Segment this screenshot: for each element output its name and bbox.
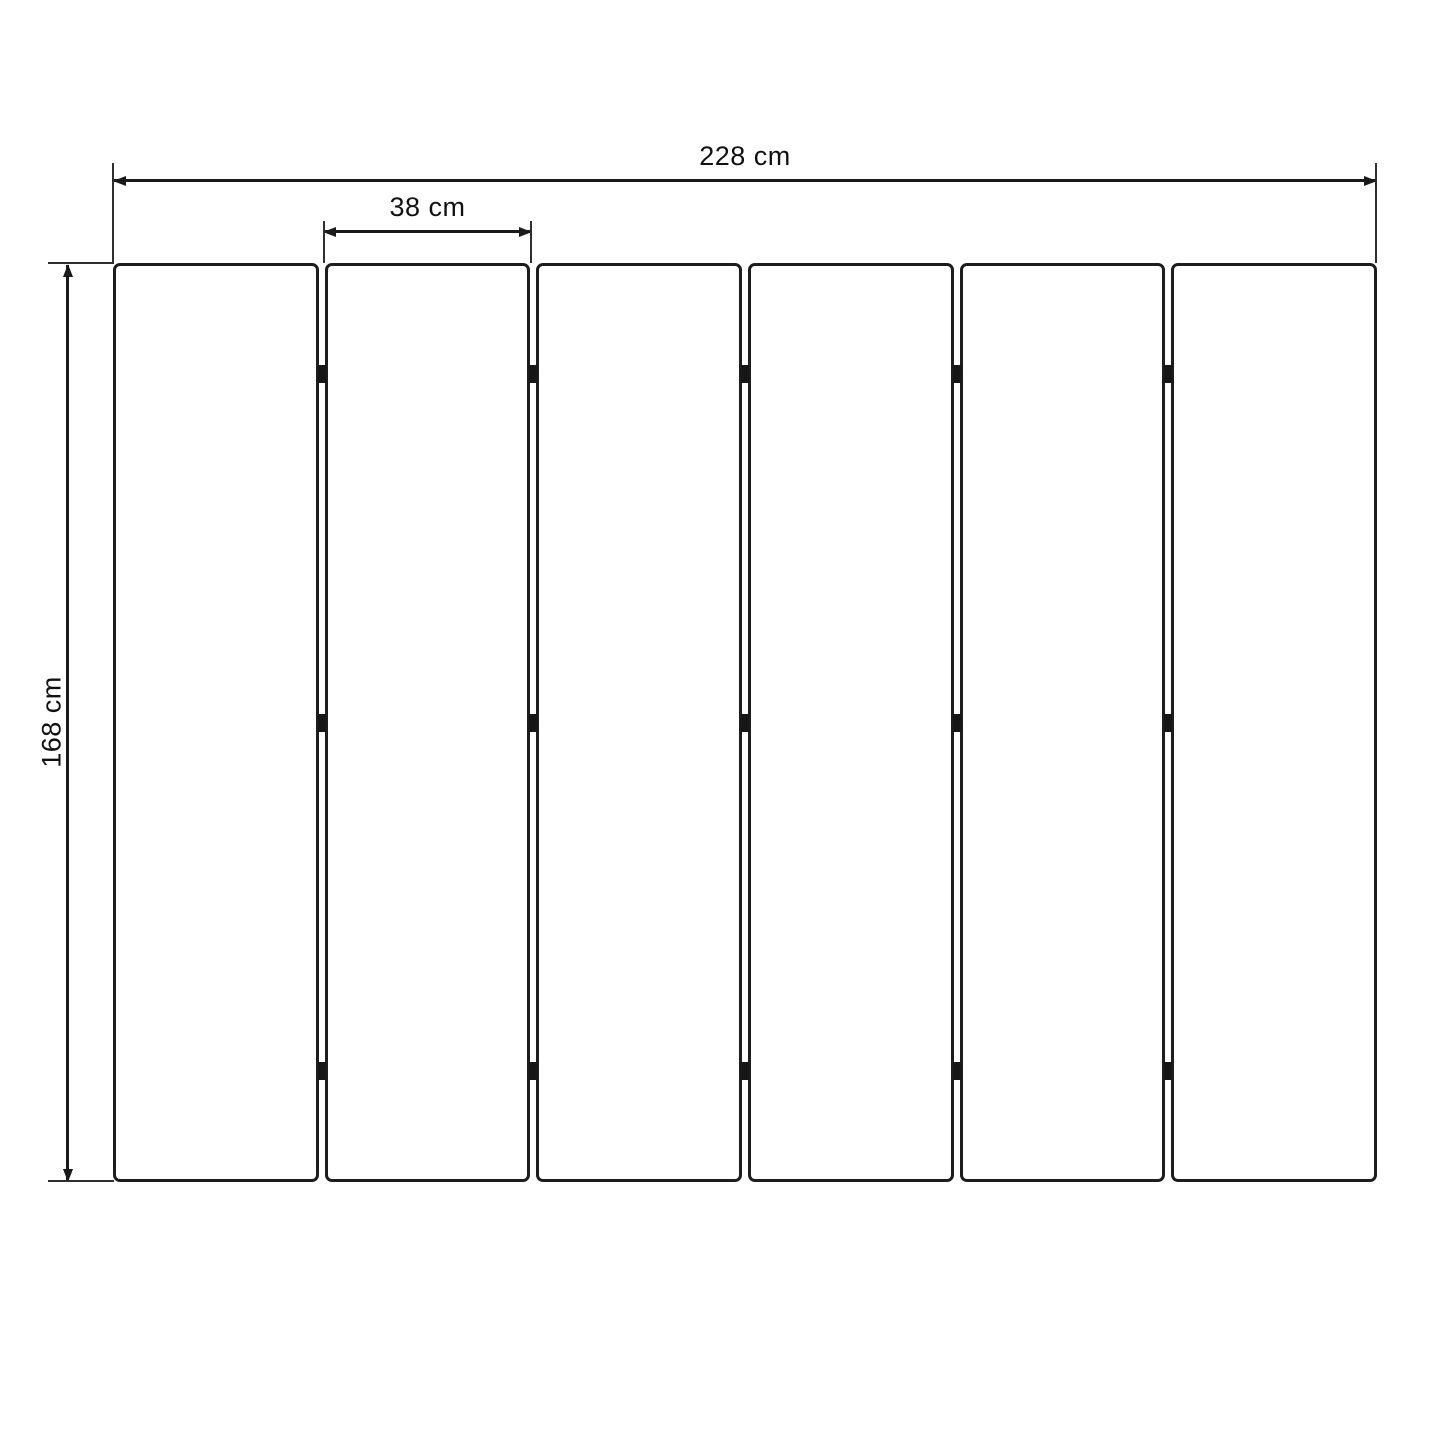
panel-gap (1165, 263, 1171, 1182)
panel-4 (748, 263, 954, 1182)
hinge-connector (953, 714, 961, 732)
extension-line-panel-right (530, 221, 532, 263)
total-width-dimension-line (114, 179, 1376, 182)
hinge-connector (741, 714, 749, 732)
diagram-canvas: 228 cm 38 cm 168 cm (0, 0, 1445, 1445)
hinge-connector (318, 365, 326, 383)
panel-6 (1171, 263, 1377, 1182)
panel-width-dimension-line (324, 230, 531, 233)
hinge-connector (318, 714, 326, 732)
total-width-label: 228 cm (113, 141, 1377, 172)
panel-2 (325, 263, 531, 1182)
hinge-connector (1164, 714, 1172, 732)
panel-gap (742, 263, 748, 1182)
arrowhead-left-icon (323, 227, 336, 237)
extension-line-height-top (48, 262, 114, 264)
panel-5 (960, 263, 1166, 1182)
hinge-connector (953, 365, 961, 383)
height-label: 168 cm (37, 676, 68, 768)
extension-line-panel-left (323, 221, 325, 263)
hinge-connector (529, 365, 537, 383)
hinge-connector (741, 365, 749, 383)
panel-width-label: 38 cm (324, 192, 531, 223)
panels-row (113, 263, 1377, 1182)
hinge-connector (529, 714, 537, 732)
hinge-connector (1164, 365, 1172, 383)
hinge-connector (1164, 1062, 1172, 1080)
hinge-connector (953, 1062, 961, 1080)
hinge-connector (318, 1062, 326, 1080)
extension-line-total-left (112, 163, 114, 263)
hinge-connector (741, 1062, 749, 1080)
arrowhead-up-icon (63, 264, 73, 277)
extension-line-height-bottom (48, 1180, 114, 1182)
extension-line-total-right (1375, 163, 1377, 263)
hinge-connector (529, 1062, 537, 1080)
height-dimension-line (66, 265, 69, 1181)
panel-1 (113, 263, 319, 1182)
panel-gap (319, 263, 325, 1182)
panel-gap (530, 263, 536, 1182)
arrowhead-left-icon (113, 176, 126, 186)
panel-3 (536, 263, 742, 1182)
panel-gap (954, 263, 960, 1182)
